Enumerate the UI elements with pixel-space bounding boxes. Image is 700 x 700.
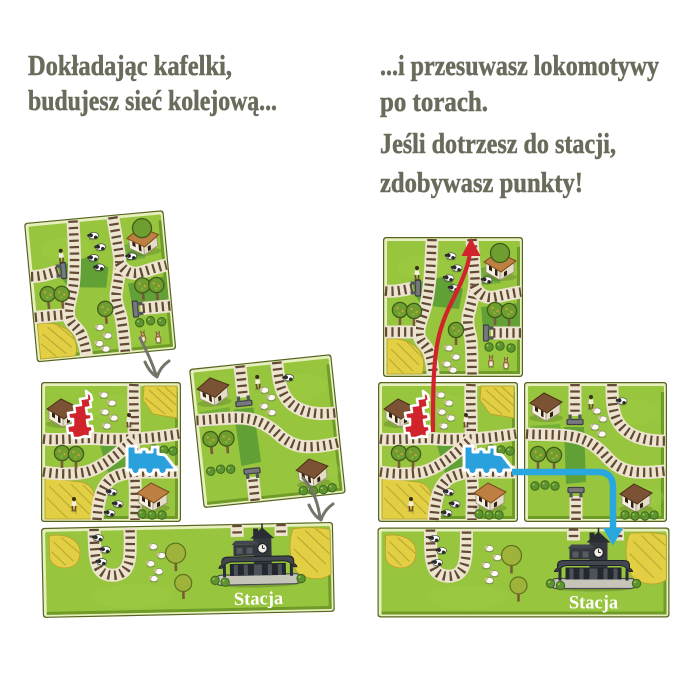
svg-text:Jeśli dotrzesz do stacji,: Jeśli dotrzesz do stacji, xyxy=(380,129,616,160)
svg-text:Dokładając kafelki,: Dokładając kafelki, xyxy=(28,51,232,82)
svg-text:...i przesuwasz lokomotywy: ...i przesuwasz lokomotywy xyxy=(380,51,659,82)
svg-text:po torach.: po torach. xyxy=(380,87,488,118)
svg-text:budujesz sieć kolejową...: budujesz sieć kolejową... xyxy=(28,86,277,117)
svg-text:zdobywasz punkty!: zdobywasz punkty! xyxy=(380,168,583,199)
